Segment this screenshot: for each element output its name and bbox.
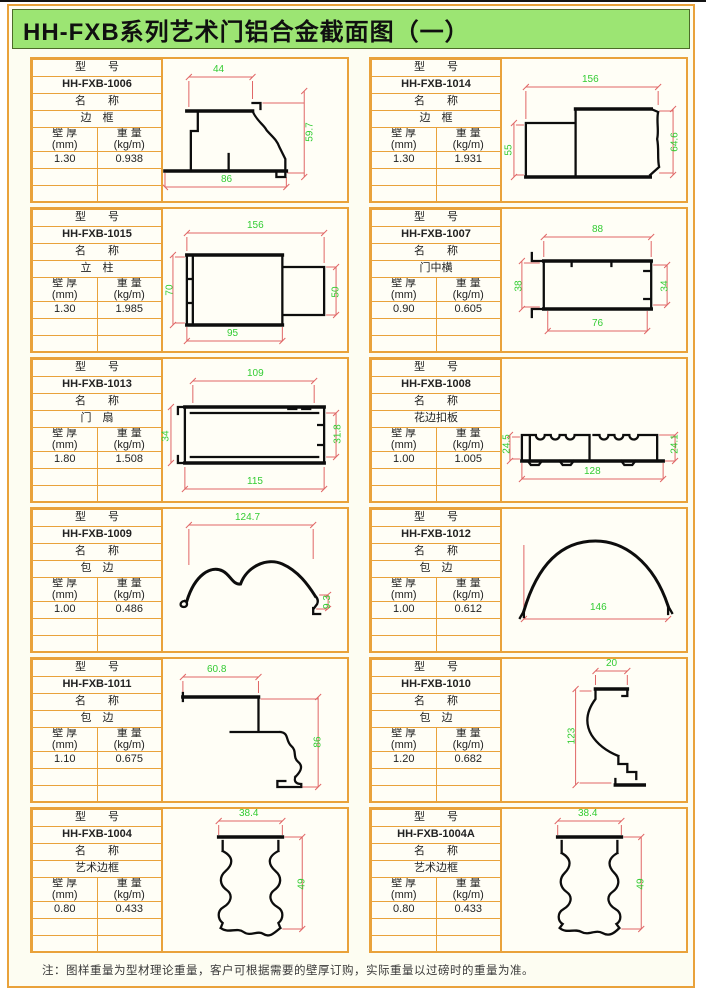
dim-right: 31.8 [334, 424, 344, 443]
thickness-header: 壁 厚(mm) [372, 878, 437, 902]
name-header-cell: 名 称 [372, 544, 501, 561]
cross-section-1011 [163, 659, 347, 801]
dim-bottom: 76 [592, 319, 603, 329]
profile-cell-1015: 型 号 HH-FXB-1015 名 称 立 柱 壁 厚(mm) 重 量(kg/m… [30, 207, 349, 353]
thickness-value: 0.90 [372, 302, 437, 319]
weight-header: 重 量(kg/m) [97, 728, 162, 752]
model-header-cell: 型 号 [372, 210, 501, 227]
cross-section-1004a [502, 809, 686, 951]
spec-table: 型 号 HH-FXB-1004 名 称 艺术边框 壁 厚(mm) 重 量(kg/… [32, 809, 162, 953]
spec-table: 型 号 HH-FXB-1013 名 称 门 扇 壁 厚(mm) 重 量(kg/m… [32, 359, 162, 503]
model-header-cell: 型 号 [372, 810, 501, 827]
name-value: 门 扇 [33, 411, 162, 428]
weight-header: 重 量(kg/m) [97, 578, 162, 602]
empty-cell [436, 469, 501, 486]
model-header-cell: 型 号 [33, 660, 162, 677]
model-value: HH-FXB-1014 [372, 77, 501, 94]
dim-left: 55 [505, 144, 515, 155]
dim-top: 88 [592, 225, 603, 235]
empty-cell [33, 636, 98, 653]
weight-value: 1.931 [436, 152, 501, 169]
dim-top: 20 [606, 659, 617, 669]
weight-header: 重 量(kg/m) [97, 428, 162, 452]
thickness-header: 壁 厚(mm) [372, 578, 437, 602]
empty-cell [436, 636, 501, 653]
profile-drawing-1011: 60.8 86 [162, 659, 347, 801]
empty-cell [33, 319, 98, 336]
thickness-header: 壁 厚(mm) [372, 728, 437, 752]
weight-value: 0.433 [97, 902, 162, 919]
profile-cell-1013: 型 号 HH-FXB-1013 名 称 门 扇 壁 厚(mm) 重 量(kg/m… [30, 357, 349, 503]
name-value: 艺术边框 [372, 861, 501, 878]
dim-bottom: 115 [247, 477, 263, 487]
profile-cell-1008: 型 号 HH-FXB-1008 名 称 花边扣板 壁 厚(mm) 重 量(kg/… [369, 357, 688, 503]
weight-header: 重 量(kg/m) [97, 278, 162, 302]
weight-header: 重 量(kg/m) [436, 128, 501, 152]
footer-note: 注：图样重量为型材理论重量，客户可根据需要的壁厚订购，实际重量以过磅时的重量为准… [42, 962, 534, 978]
dim-bottom: 146 [590, 603, 607, 613]
profile-drawing-1012: 146 [501, 509, 686, 651]
empty-cell [97, 319, 162, 336]
cross-section-1006 [163, 59, 347, 201]
profile-drawing-1009: 124.7 9.3 [162, 509, 347, 651]
spec-table: 型 号 HH-FXB-1009 名 称 包 边 壁 厚(mm) 重 量(kg/m… [32, 509, 162, 653]
empty-cell [97, 469, 162, 486]
model-header-cell: 型 号 [372, 360, 501, 377]
weight-value: 1.508 [97, 452, 162, 469]
dim-left: 123 [567, 728, 577, 745]
empty-cell [97, 169, 162, 186]
weight-value: 0.675 [97, 752, 162, 769]
empty-cell [33, 186, 98, 203]
empty-cell [33, 769, 98, 786]
empty-cell [372, 919, 437, 936]
model-value: HH-FXB-1004A [372, 827, 501, 844]
thickness-header: 壁 厚(mm) [372, 428, 437, 452]
profile-cell-1011: 型 号 HH-FXB-1011 名 称 包 边 壁 厚(mm) 重 量(kg/m… [30, 657, 349, 803]
dim-left: 34 [162, 430, 172, 441]
dim-bottom: 95 [227, 329, 238, 339]
name-value: 边 框 [33, 111, 162, 128]
empty-cell [372, 636, 437, 653]
thickness-header: 壁 厚(mm) [33, 578, 98, 602]
weight-value: 0.605 [436, 302, 501, 319]
spec-table: 型 号 HH-FXB-1010 名 称 包 边 壁 厚(mm) 重 量(kg/m… [371, 659, 501, 803]
weight-header: 重 量(kg/m) [436, 728, 501, 752]
model-header-cell: 型 号 [33, 60, 162, 77]
page-title: HH-FXB系列艺术门铝合金截面图（一） [12, 9, 690, 49]
profile-drawing-1004: 38.4 49 [162, 809, 347, 951]
model-header-cell: 型 号 [372, 510, 501, 527]
name-header-cell: 名 称 [33, 694, 162, 711]
empty-cell [372, 486, 437, 503]
weight-header: 重 量(kg/m) [436, 578, 501, 602]
profile-cell-1009: 型 号 HH-FXB-1009 名 称 包 边 壁 厚(mm) 重 量(kg/m… [30, 507, 349, 653]
dim-top: 109 [247, 369, 264, 379]
dim-right: 34 [661, 280, 671, 291]
empty-cell [33, 169, 98, 186]
weight-value: 1.985 [97, 302, 162, 319]
name-value: 包 边 [372, 711, 501, 728]
thickness-header: 壁 厚(mm) [33, 728, 98, 752]
thickness-value: 1.00 [372, 452, 437, 469]
empty-cell [33, 469, 98, 486]
empty-cell [33, 619, 98, 636]
model-header-cell: 型 号 [372, 60, 501, 77]
name-header-cell: 名 称 [372, 94, 501, 111]
empty-cell [372, 169, 437, 186]
name-value: 门中横 [372, 261, 501, 278]
model-header-cell: 型 号 [372, 660, 501, 677]
thickness-value: 0.80 [372, 902, 437, 919]
name-header-cell: 名 称 [372, 244, 501, 261]
thickness-value: 1.00 [33, 602, 98, 619]
empty-cell [436, 486, 501, 503]
model-value: HH-FXB-1007 [372, 227, 501, 244]
weight-header: 重 量(kg/m) [436, 878, 501, 902]
empty-cell [372, 619, 437, 636]
empty-cell [97, 769, 162, 786]
thickness-value: 1.30 [33, 152, 98, 169]
empty-cell [372, 336, 437, 353]
dim-right: 86 [314, 736, 324, 747]
empty-cell [436, 186, 501, 203]
cross-section-1009 [163, 509, 347, 651]
thickness-header: 壁 厚(mm) [33, 278, 98, 302]
dim-top: 156 [247, 221, 264, 231]
dim-left: 38 [515, 280, 525, 291]
dim-top: 124.7 [235, 513, 260, 523]
scan-top-edge [0, 0, 706, 2]
thickness-value: 1.30 [372, 152, 437, 169]
profile-drawing-1006: 44 59.7 86 [162, 59, 347, 201]
spec-table: 型 号 HH-FXB-1007 名 称 门中横 壁 厚(mm) 重 量(kg/m… [371, 209, 501, 353]
weight-header: 重 量(kg/m) [97, 878, 162, 902]
profile-drawing-1015: 156 70 50 95 [162, 209, 347, 351]
weight-header: 重 量(kg/m) [97, 128, 162, 152]
dim-right: 9.3 [323, 595, 333, 609]
profile-drawing-1013: 109 34 31.8 115 [162, 359, 347, 501]
spec-table: 型 号 HH-FXB-1015 名 称 立 柱 壁 厚(mm) 重 量(kg/m… [32, 209, 162, 353]
cross-section-1008 [502, 359, 686, 501]
weight-header: 重 量(kg/m) [436, 428, 501, 452]
empty-cell [97, 486, 162, 503]
empty-cell [436, 936, 501, 953]
dim-top: 38.4 [239, 809, 258, 819]
empty-cell [436, 169, 501, 186]
name-header-cell: 名 称 [372, 394, 501, 411]
model-value: HH-FXB-1004 [33, 827, 162, 844]
model-value: HH-FXB-1015 [33, 227, 162, 244]
cross-section-1010 [502, 659, 686, 801]
profile-drawing-1010: 20 123 [501, 659, 686, 801]
name-value: 立 柱 [33, 261, 162, 278]
model-value: HH-FXB-1006 [33, 77, 162, 94]
thickness-header: 壁 厚(mm) [372, 128, 437, 152]
cross-section-1012 [502, 509, 686, 651]
empty-cell [436, 619, 501, 636]
spec-table: 型 号 HH-FXB-1012 名 称 包 边 壁 厚(mm) 重 量(kg/m… [371, 509, 501, 653]
dim-bottom: 86 [221, 175, 232, 185]
dim-bottom: 128 [584, 467, 601, 477]
profile-cell-1004: 型 号 HH-FXB-1004 名 称 艺术边框 壁 厚(mm) 重 量(kg/… [30, 807, 349, 953]
spec-table: 型 号 HH-FXB-1014 名 称 边 框 壁 厚(mm) 重 量(kg/m… [371, 59, 501, 203]
model-header-cell: 型 号 [33, 360, 162, 377]
empty-cell [372, 769, 437, 786]
thickness-header: 壁 厚(mm) [372, 278, 437, 302]
profile-cell-1007: 型 号 HH-FXB-1007 名 称 门中横 壁 厚(mm) 重 量(kg/m… [369, 207, 688, 353]
cross-section-1004 [163, 809, 347, 951]
profile-drawing-1007: 88 38 34 76 [501, 209, 686, 351]
thickness-header: 壁 厚(mm) [33, 878, 98, 902]
name-header-cell: 名 称 [33, 94, 162, 111]
dim-top: 44 [213, 65, 224, 75]
empty-cell [97, 636, 162, 653]
model-header-cell: 型 号 [33, 810, 162, 827]
dim-left: 70 [166, 284, 176, 295]
thickness-header: 壁 厚(mm) [33, 128, 98, 152]
dim-right: 50 [332, 286, 342, 297]
weight-value: 0.433 [436, 902, 501, 919]
dim-top: 38.4 [578, 809, 597, 819]
model-header-cell: 型 号 [33, 210, 162, 227]
dim-right: 24.1 [671, 434, 681, 453]
profile-cell-1012: 型 号 HH-FXB-1012 名 称 包 边 壁 厚(mm) 重 量(kg/m… [369, 507, 688, 653]
empty-cell [33, 786, 98, 803]
profile-grid: 型 号 HH-FXB-1006 名 称 边 框 壁 厚(mm) 重 量(kg/m… [30, 57, 688, 953]
empty-cell [436, 769, 501, 786]
profile-cell-1006: 型 号 HH-FXB-1006 名 称 边 框 壁 厚(mm) 重 量(kg/m… [30, 57, 349, 203]
empty-cell [33, 936, 98, 953]
model-value: HH-FXB-1011 [33, 677, 162, 694]
thickness-value: 1.10 [33, 752, 98, 769]
empty-cell [97, 336, 162, 353]
thickness-value: 1.30 [33, 302, 98, 319]
empty-cell [372, 469, 437, 486]
spec-table: 型 号 HH-FXB-1008 名 称 花边扣板 壁 厚(mm) 重 量(kg/… [371, 359, 501, 503]
profile-drawing-1008: 24.5 24.1 128 [501, 359, 686, 501]
empty-cell [436, 336, 501, 353]
empty-cell [33, 336, 98, 353]
dim-right: 64.6 [671, 132, 681, 151]
empty-cell [372, 186, 437, 203]
thickness-value: 0.80 [33, 902, 98, 919]
empty-cell [436, 319, 501, 336]
thickness-value: 1.80 [33, 452, 98, 469]
empty-cell [372, 786, 437, 803]
weight-header: 重 量(kg/m) [436, 278, 501, 302]
thickness-value: 1.20 [372, 752, 437, 769]
name-value: 包 边 [33, 711, 162, 728]
dim-left: 24.5 [503, 434, 513, 453]
name-header-cell: 名 称 [33, 844, 162, 861]
spec-table: 型 号 HH-FXB-1006 名 称 边 框 壁 厚(mm) 重 量(kg/m… [32, 59, 162, 203]
name-value: 艺术边框 [33, 861, 162, 878]
thickness-header: 壁 厚(mm) [33, 428, 98, 452]
weight-value: 0.486 [97, 602, 162, 619]
name-value: 边 框 [372, 111, 501, 128]
empty-cell [33, 486, 98, 503]
empty-cell [372, 936, 437, 953]
name-header-cell: 名 称 [33, 544, 162, 561]
model-value: HH-FXB-1008 [372, 377, 501, 394]
model-value: HH-FXB-1012 [372, 527, 501, 544]
empty-cell [436, 919, 501, 936]
name-value: 花边扣板 [372, 411, 501, 428]
empty-cell [436, 786, 501, 803]
name-header-cell: 名 称 [33, 244, 162, 261]
dim-top: 156 [582, 75, 599, 85]
weight-value: 0.938 [97, 152, 162, 169]
empty-cell [97, 619, 162, 636]
model-value: HH-FXB-1013 [33, 377, 162, 394]
spec-table: 型 号 HH-FXB-1011 名 称 包 边 壁 厚(mm) 重 量(kg/m… [32, 659, 162, 803]
empty-cell [97, 186, 162, 203]
spec-table: 型 号 HH-FXB-1004A 名 称 艺术边框 壁 厚(mm) 重 量(kg… [371, 809, 501, 953]
profile-drawing-1004a: 38.4 49 [501, 809, 686, 951]
profile-cell-1004a: 型 号 HH-FXB-1004A 名 称 艺术边框 壁 厚(mm) 重 量(kg… [369, 807, 688, 953]
weight-value: 1.005 [436, 452, 501, 469]
name-value: 包 边 [33, 561, 162, 578]
profile-cell-1014: 型 号 HH-FXB-1014 名 称 边 框 壁 厚(mm) 重 量(kg/m… [369, 57, 688, 203]
profile-drawing-1014: 156 55 64.6 [501, 59, 686, 201]
dim-right: 49 [637, 878, 647, 889]
model-value: HH-FXB-1010 [372, 677, 501, 694]
name-header-cell: 名 称 [372, 844, 501, 861]
thickness-value: 1.00 [372, 602, 437, 619]
empty-cell [33, 919, 98, 936]
empty-cell [97, 936, 162, 953]
dim-right: 49 [298, 878, 308, 889]
profile-cell-1010: 型 号 HH-FXB-1010 名 称 包 边 壁 厚(mm) 重 量(kg/m… [369, 657, 688, 803]
name-header-cell: 名 称 [33, 394, 162, 411]
weight-value: 0.682 [436, 752, 501, 769]
name-header-cell: 名 称 [372, 694, 501, 711]
empty-cell [372, 319, 437, 336]
model-value: HH-FXB-1009 [33, 527, 162, 544]
name-value: 包 边 [372, 561, 501, 578]
empty-cell [97, 786, 162, 803]
dim-top: 60.8 [207, 665, 226, 675]
dim-right: 59.7 [306, 122, 316, 141]
empty-cell [97, 919, 162, 936]
model-header-cell: 型 号 [33, 510, 162, 527]
weight-value: 0.612 [436, 602, 501, 619]
